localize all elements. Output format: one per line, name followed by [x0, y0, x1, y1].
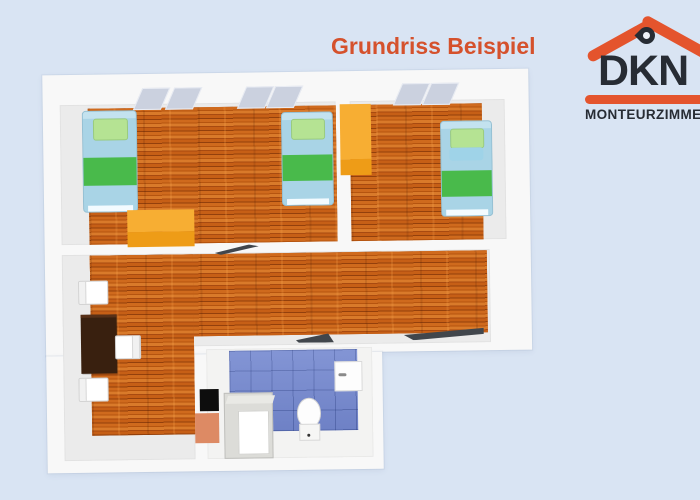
bed-pillow [449, 148, 483, 162]
floorplan [42, 69, 534, 474]
toilet [297, 398, 321, 442]
chair-back [79, 282, 86, 304]
logo-tagline: MONTEURZIMMER [585, 107, 700, 122]
wardrobe-1-top [127, 209, 194, 232]
faucet-icon [338, 373, 346, 376]
bed-pillow [450, 128, 484, 149]
chair-1 [78, 281, 108, 305]
bed-pillow [291, 119, 325, 140]
logo-underline [585, 95, 700, 104]
shower [224, 392, 274, 459]
shower-tray [238, 410, 270, 455]
wardrobe-1-front [127, 231, 194, 247]
stove-block [200, 389, 219, 411]
wardrobe-2-top [340, 104, 372, 159]
bed-blanket [281, 155, 333, 181]
mat-block [195, 413, 219, 443]
bed-3 [440, 120, 493, 217]
toilet-button [307, 434, 310, 437]
bed-blanket [82, 157, 137, 186]
bed-pillow [92, 118, 128, 140]
dkn-logo: DKN MONTEURZIMMER [580, 6, 700, 131]
sink [334, 361, 362, 391]
dining-table [81, 314, 118, 373]
chair-3 [78, 378, 108, 402]
chair-2 [115, 335, 141, 359]
bed-foot [287, 199, 329, 205]
page-title: Grundriss Beispiel [331, 33, 536, 60]
bed-1 [82, 110, 138, 213]
chair-back [79, 379, 86, 401]
wardrobe-2-front [340, 159, 371, 175]
chair-back [132, 336, 140, 358]
logo-wordmark: DKN [598, 50, 688, 93]
toilet-base [299, 424, 320, 441]
shower-frame [226, 395, 275, 404]
screenshot-root: { "title": "Grundriss Beispiel", "logo":… [0, 0, 700, 500]
bed-foot [446, 210, 488, 216]
bed-2 [281, 111, 334, 206]
bed-blanket [441, 170, 493, 197]
